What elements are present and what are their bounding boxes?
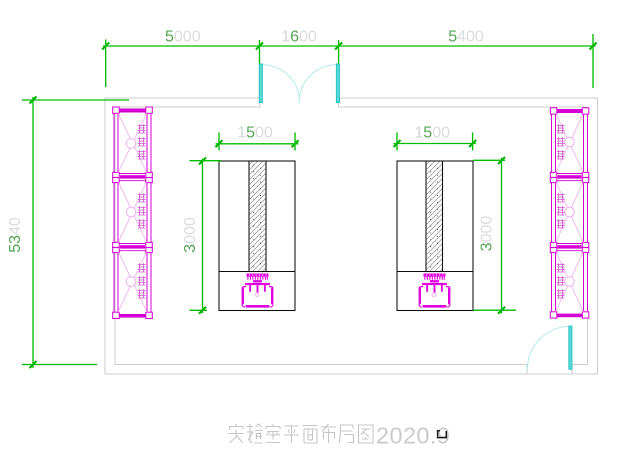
svg-text:2020.9: 2020.9 (376, 423, 450, 449)
svg-text:1600: 1600 (281, 28, 317, 45)
svg-text:5340: 5340 (7, 217, 24, 253)
svg-text:5400: 5400 (448, 28, 484, 45)
svg-text:1500: 1500 (414, 125, 450, 142)
svg-text:3000: 3000 (478, 216, 495, 252)
svg-text:5000: 5000 (165, 28, 201, 45)
svg-text:1500: 1500 (237, 125, 273, 142)
svg-text:3000: 3000 (182, 217, 199, 253)
